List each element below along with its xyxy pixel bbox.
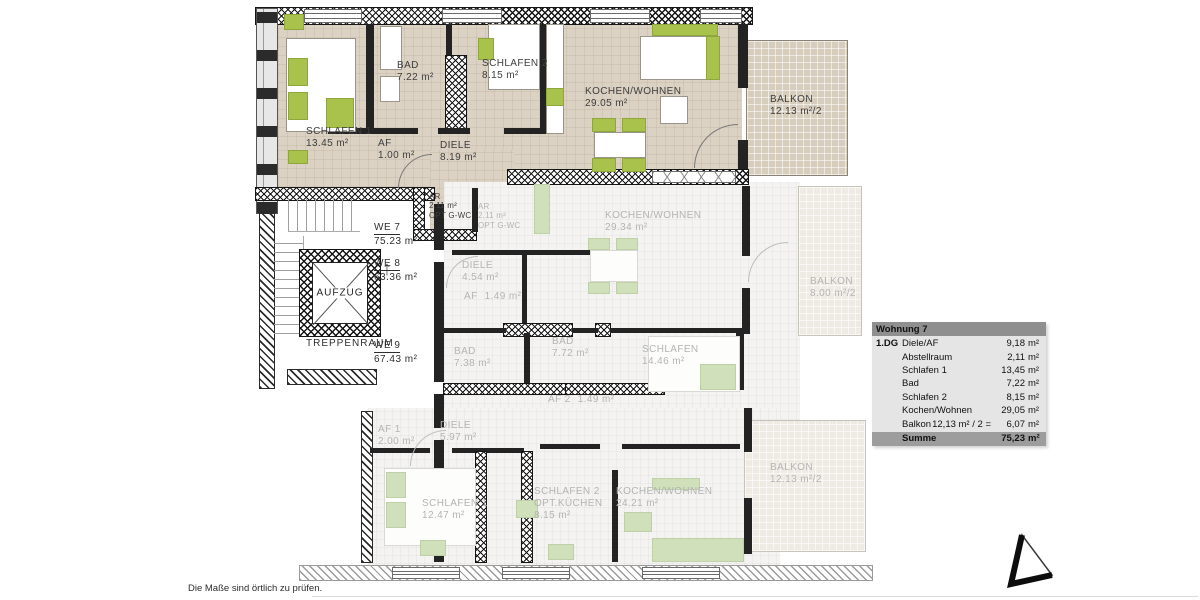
room-label-we8-ar: AR2.11 m²OPT G-WC [478, 202, 520, 230]
we9-wall-left [362, 412, 372, 562]
pillow-we9-1 [386, 472, 406, 498]
window-kitchen-bottom [652, 171, 736, 183]
window-bottom-2 [502, 567, 570, 579]
room-label-we8-schlafen: SCHLAFEN14.46 m² [642, 344, 699, 368]
table-row: Kochen/Wohnen29,05m² [872, 404, 1046, 417]
room-label-we7-schlafen2: SCHLAFEN 28.15 m² [482, 58, 548, 82]
we8-wall-balcony-2 [742, 288, 750, 334]
stairs-upper-flight [288, 198, 360, 232]
wall-stairwell-left [260, 214, 274, 388]
wall-core-divider-2 [434, 262, 444, 382]
window-top-3 [590, 9, 650, 23]
room-label-we7-af: AF1.00 m² [378, 138, 415, 162]
we9-wall-top-4 [622, 444, 740, 449]
wall-under-bad-2 [438, 128, 470, 134]
table-row: 1.DGDiele/AF9,18m² [872, 337, 1046, 350]
kitchen-unit-we8 [534, 184, 550, 234]
table-row: Bad7,22m² [872, 377, 1046, 390]
we8-wall-mid-1 [444, 328, 506, 333]
room-label-we9-schlafen1: SCHLAFEN 112.47 m² [422, 498, 488, 522]
wall-right-upper [738, 24, 748, 88]
window-top-1 [304, 9, 362, 23]
we9-wall-bottom-exterior [300, 566, 872, 580]
room-label-we9-af1: AF 12.00 m² [378, 424, 415, 448]
wall-schlafen1-bad [366, 24, 374, 130]
chair-we7-4 [622, 158, 646, 172]
chair-we8-4 [616, 282, 638, 294]
unit-label-we7: WE 7 75.23 m² [374, 222, 417, 247]
cabinet-we9-3 [548, 544, 574, 560]
wall-left-window-band [256, 8, 278, 214]
room-label-we9-schlafen2: SCHLAFEN 2OPT.KÜCHEN8.15 m² [534, 486, 602, 521]
wall-pier-bad-schlafen2 [446, 56, 466, 130]
blanket-we7 [326, 98, 354, 128]
area-table-header: Wohnung 7 [872, 322, 1046, 336]
we9-wall-right-1 [744, 408, 752, 452]
wall-under-schlafen2 [504, 128, 548, 134]
cabinet-we9-2 [624, 512, 652, 532]
sofa-back-we7 [652, 24, 718, 36]
pillow-we9-2 [386, 502, 406, 528]
footer-note: Die Maße sind örtlich zu prüfen. [188, 583, 322, 594]
pillow-we7-1 [288, 58, 308, 86]
bottom-divider-line [312, 596, 1198, 597]
we9-wall-top-3 [540, 444, 600, 449]
room-label-we7-bad: BAD7.22 m² [397, 60, 434, 84]
room-label-we8-bad2: BAD7.72 m² [552, 336, 589, 360]
room-label-we9-diele: DIELE5.97 m² [440, 420, 477, 444]
kitchen-counter-we7 [546, 24, 564, 134]
room-label-we9-balkon: BALKON12.13 m²/2 [770, 462, 822, 486]
room-label-we8-kochen: KOCHEN/WOHNEN29.34 m² [605, 210, 701, 234]
unit-label-we8: WE 8 63.36 m² [374, 258, 417, 283]
area-table-sum-row: Summe75,23m² [872, 432, 1046, 446]
room-label-we8-bad1: BAD7.38 m² [454, 346, 491, 370]
room-label-we8-diele: DIELE4.54 m² [462, 260, 499, 284]
chair-we7-1 [592, 118, 616, 132]
window-bottom-3 [642, 567, 720, 579]
we8-balcony-floor [798, 186, 862, 336]
room-label-we8-af2: AF 21.49 m² [548, 394, 621, 406]
chair-we7-3 [592, 158, 616, 172]
we9-wall-schlafen2-right [612, 470, 618, 562]
we8-wall-mid-2 [572, 328, 598, 333]
elevator-cab: AUFZUG [312, 262, 368, 324]
north-arrow-icon [1004, 532, 1064, 594]
table-row: Abstellraum2,11m² [872, 350, 1046, 363]
wall-right-lower [738, 140, 748, 174]
unit-label-we9: WE 9 67.43 m² [374, 340, 417, 365]
we8-wall-pier-1 [504, 324, 572, 336]
room-label-we7-kochen: KOCHEN/WOHNEN29.05 m² [585, 86, 681, 110]
chair-we7-2 [622, 118, 646, 132]
kitchen-green-unit-we7 [546, 88, 564, 106]
we8-wall-pier-2 [596, 324, 610, 336]
table-row: Schlafen 113,45m² [872, 364, 1046, 377]
chair-we8-2 [616, 238, 638, 250]
room-label-we7-schlafen1: SCHLAFEN 113.45 m² [306, 126, 372, 150]
room-label-we7-diele: DIELE8.19 m² [440, 140, 477, 164]
sofa-we9 [652, 538, 744, 562]
wall-stairwell-bottom [288, 370, 376, 384]
chair-we8-1 [588, 238, 610, 250]
we9-wall-right-2 [744, 498, 752, 554]
blanket-we8 [700, 364, 736, 390]
sofa-side-we7 [706, 36, 720, 80]
we8-wall-bottom-1 [444, 384, 566, 394]
table-row: Schlafen 28,15m² [872, 391, 1046, 404]
we9-balcony-floor [744, 420, 866, 552]
pillow-we7-2 [288, 92, 308, 120]
wardrobe-we7-schlafen2 [478, 38, 494, 60]
we8-wall-mid-3 [610, 328, 744, 333]
room-label-we7-balkon: BALKON12.13 m²/2 [770, 94, 822, 118]
we8-wall-balcony-1 [742, 186, 750, 256]
window-bottom-1 [392, 567, 460, 579]
dining-table-we7 [594, 132, 646, 158]
we9-wall-top-2 [452, 448, 524, 453]
chair-we8-3 [588, 282, 610, 294]
wall-bad-upper [446, 24, 452, 58]
dresser-we9-1 [420, 540, 446, 556]
dining-table-we8 [590, 250, 638, 282]
area-table: Wohnung 7 1.DGDiele/AF9,18m² Abstellraum… [872, 322, 1046, 446]
room-label-we9-kochen: KOCHEN/WOHNEN24.21 m² [616, 486, 712, 510]
dresser-we7 [288, 150, 308, 164]
room-label-we7-ar: AR2.11 m²OPT G-WC [429, 192, 471, 220]
room-label-we8-balkon: BALKON8.00 m²/2 [810, 276, 856, 300]
wall-ar-bottom [414, 230, 476, 240]
window-top-4 [700, 9, 742, 23]
room-label-we8-af: AF1.49 m² [464, 291, 528, 303]
window-top-2 [442, 9, 502, 23]
floor-plan-canvas: AUFZUG ↑ TREPPENRAUM WE 7 75.23 m² WE 8 … [0, 0, 1200, 600]
table-row: Balkon12,13 m² / 2 =6,07m² [872, 417, 1046, 430]
elevator-label: AUFZUG [313, 288, 366, 299]
we8-wall-bad-divider [524, 333, 530, 389]
plant-we7-top [284, 14, 304, 30]
area-table-body: 1.DGDiele/AF9,18m² Abstellraum2,11m² Sch… [872, 336, 1046, 432]
